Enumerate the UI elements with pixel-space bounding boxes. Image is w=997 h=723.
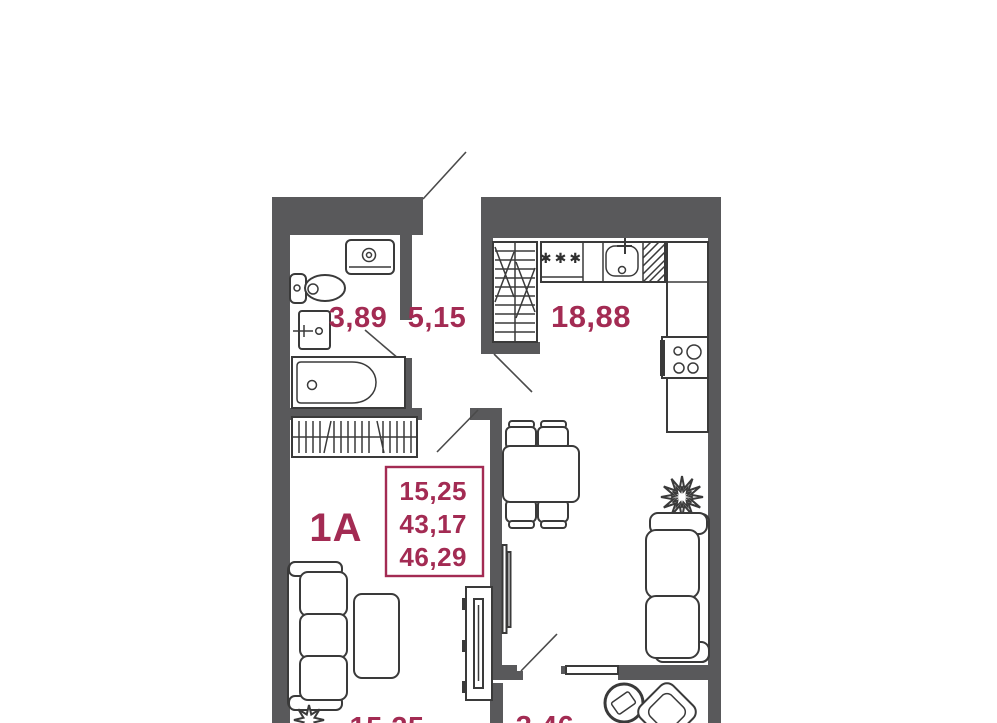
balcony-window <box>566 666 618 674</box>
plant-large <box>661 476 703 518</box>
shelved-closet <box>493 242 537 342</box>
wall-tv-dining <box>503 545 511 633</box>
balcony-chair <box>634 679 699 723</box>
washing-machine <box>346 240 394 274</box>
wall-hall-kitchen <box>481 197 493 342</box>
area-without-balcony-value: 43,17 <box>399 509 467 539</box>
sofa-left <box>288 562 347 710</box>
kitchen-area-label: 18,88 <box>551 299 631 334</box>
balcony-area-label-cut: 3,46 <box>516 711 574 723</box>
kitchen-door-swing <box>494 354 532 392</box>
balcony-door-swing <box>521 634 557 671</box>
kitchen-counter-column <box>660 242 708 432</box>
sofa-right <box>646 513 709 662</box>
total-area-value: 46,29 <box>399 542 467 572</box>
dining-furniture <box>503 421 710 662</box>
bathroom-sink-cabinet <box>293 311 330 349</box>
stove-marking: ✱✱✱ <box>540 251 584 267</box>
hallway-area-label: 5,15 <box>408 302 466 334</box>
bathroom-door-swing <box>365 330 399 359</box>
kitchen-fixtures <box>493 238 708 432</box>
cooktop <box>660 337 708 378</box>
entrance-door-swing <box>423 152 466 199</box>
living-area-value: 15,25 <box>399 476 467 506</box>
wall-balcony-top <box>618 665 721 680</box>
bedroom-area-label-cut: 15,25 <box>349 712 424 723</box>
hanger-wardrobe <box>292 417 417 457</box>
balcony-furniture <box>605 679 700 723</box>
floor-plan-svg: 3,89 5,15 18,88 1А 15,25 43,17 46,29 15,… <box>0 0 997 723</box>
floor-plan: 3,89 5,15 18,88 1А 15,25 43,17 46,29 15,… <box>0 0 997 723</box>
toilet <box>290 274 345 303</box>
balcony-round-stool <box>605 684 643 722</box>
dining-table <box>503 446 579 502</box>
bathtub <box>292 357 405 408</box>
wall-top-entry <box>272 197 423 235</box>
wall-top-kitchen <box>487 197 721 238</box>
wall-kitchen-stub <box>481 342 540 354</box>
living-door-swing <box>437 410 478 452</box>
bathroom-area-label: 3,89 <box>329 302 387 334</box>
unit-type-label: 1А <box>309 506 362 550</box>
coffee-table <box>354 594 399 678</box>
tv-stand <box>462 587 492 700</box>
